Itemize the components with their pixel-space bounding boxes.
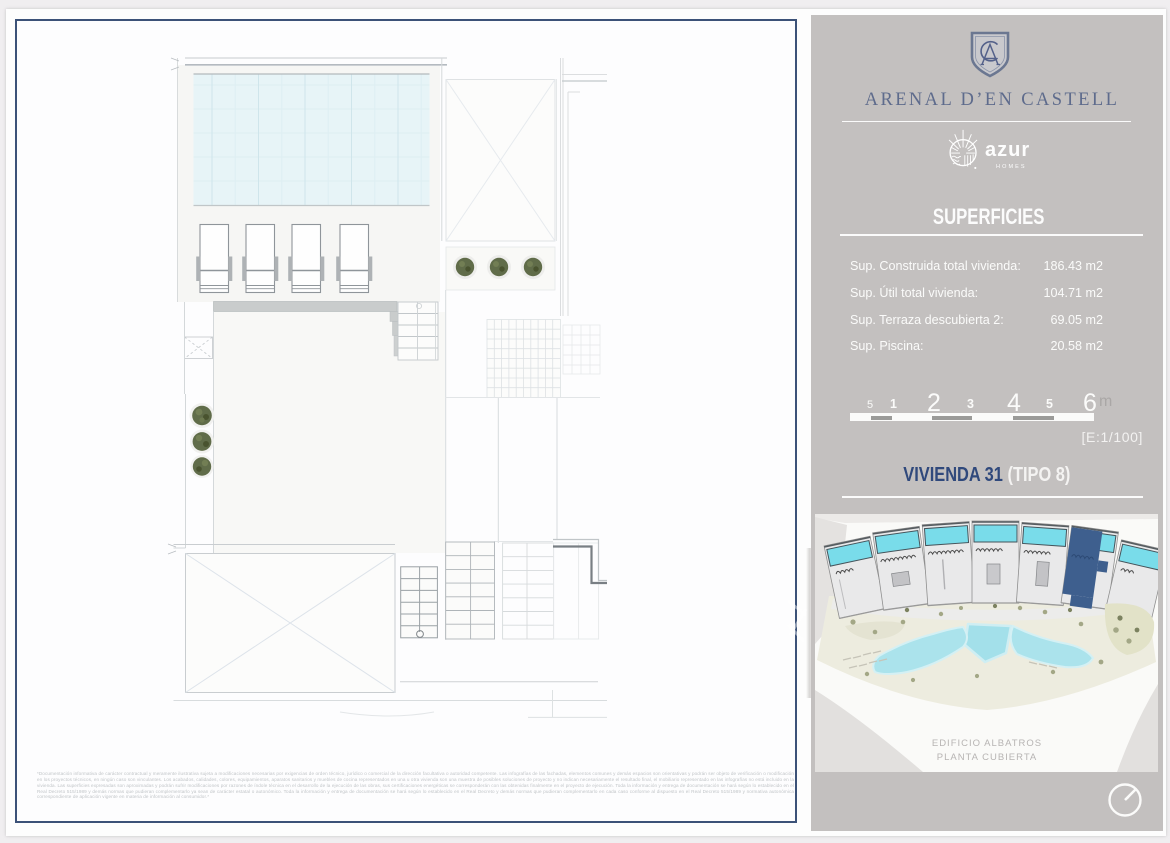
svg-text:PLANTA CUBIERTA: PLANTA CUBIERTA (937, 752, 1038, 763)
svg-text:EDIFICIO ALBATROS: EDIFICIO ALBATROS (932, 738, 1042, 749)
